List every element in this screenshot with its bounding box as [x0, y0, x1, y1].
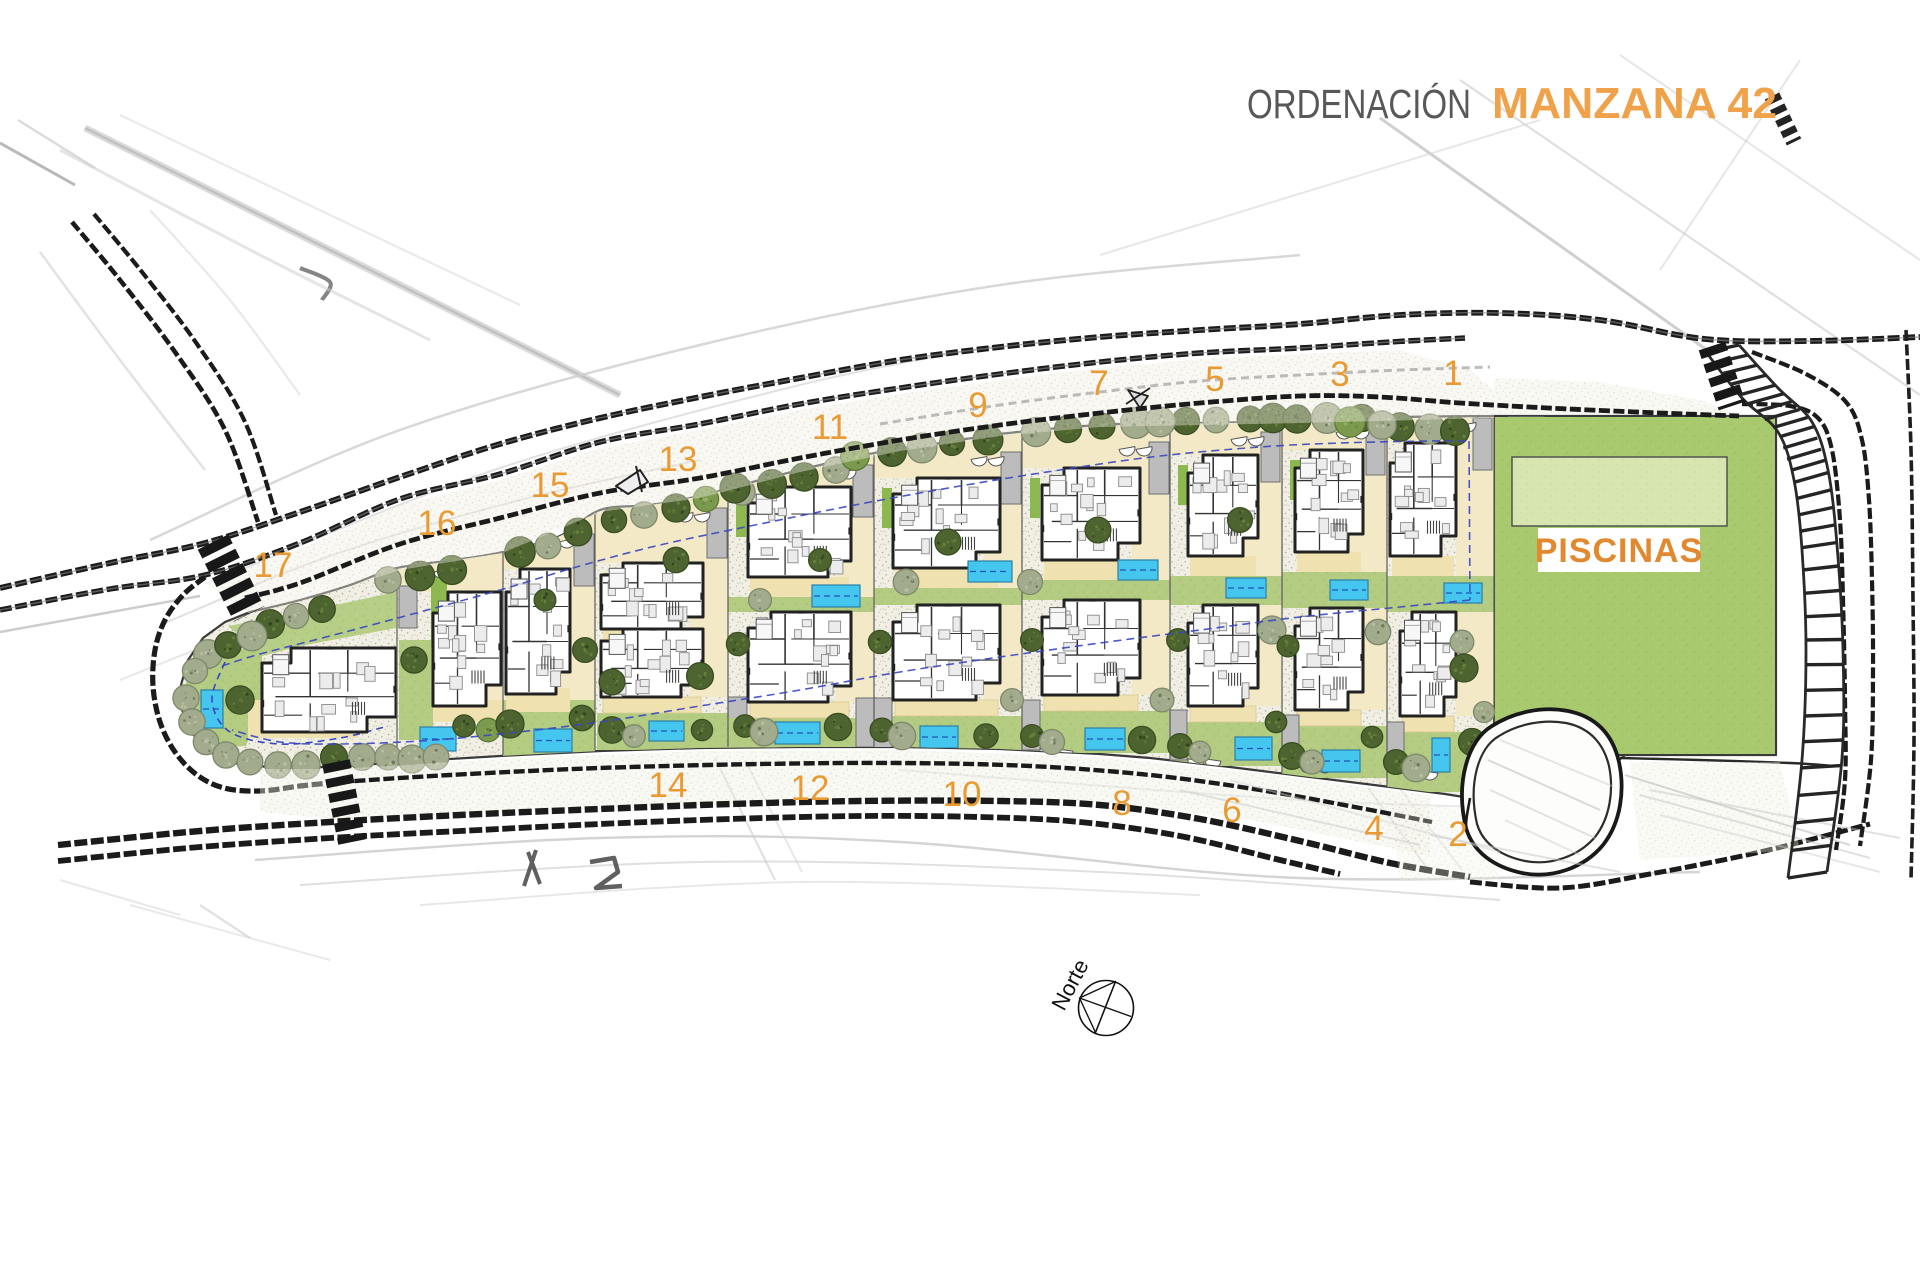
svg-text:2: 2 — [1448, 815, 1467, 854]
svg-text:13: 13 — [659, 440, 698, 479]
svg-text:8: 8 — [1112, 784, 1131, 823]
svg-text:12: 12 — [791, 769, 830, 808]
svg-text:ORDENACIÓN: ORDENACIÓN — [1247, 81, 1471, 127]
svg-text:15: 15 — [531, 466, 570, 505]
svg-text:9: 9 — [968, 386, 987, 425]
svg-text:7: 7 — [1089, 364, 1108, 403]
svg-text:14: 14 — [649, 766, 688, 805]
svg-text:MANZANA 42: MANZANA 42 — [1492, 79, 1777, 128]
svg-text:4: 4 — [1364, 809, 1383, 848]
svg-text:6: 6 — [1222, 791, 1241, 830]
svg-text:5: 5 — [1205, 360, 1224, 399]
svg-text:PISCINAS: PISCINAS — [1535, 532, 1704, 570]
svg-text:17: 17 — [254, 546, 293, 585]
svg-text:16: 16 — [418, 504, 457, 543]
svg-text:11: 11 — [812, 408, 848, 447]
svg-text:10: 10 — [943, 775, 982, 814]
svg-text:3: 3 — [1330, 355, 1349, 394]
svg-text:1: 1 — [1443, 354, 1462, 393]
